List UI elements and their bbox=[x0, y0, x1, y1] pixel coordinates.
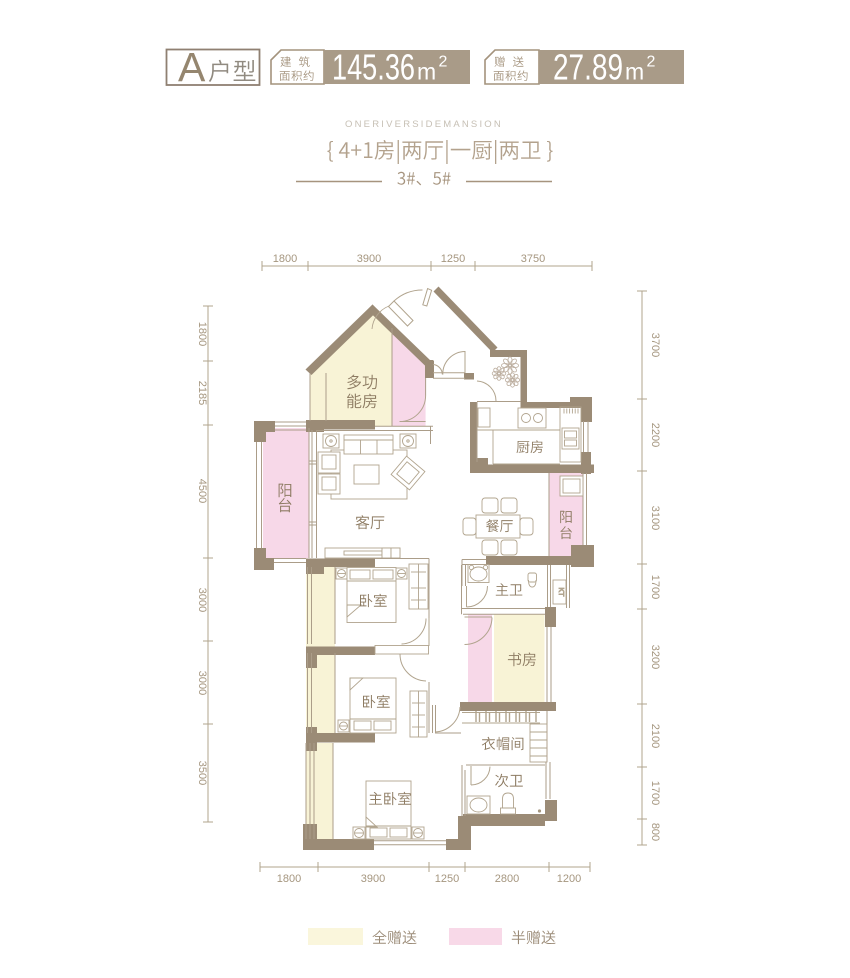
svg-text:2100: 2100 bbox=[649, 724, 661, 748]
svg-text:3100: 3100 bbox=[649, 506, 661, 530]
svg-text:KT: KT bbox=[557, 588, 564, 598]
svg-text:2: 2 bbox=[647, 54, 656, 71]
svg-text:1700: 1700 bbox=[649, 781, 661, 805]
svg-text:27.89: 27.89 bbox=[553, 47, 623, 88]
svg-text:1700: 1700 bbox=[649, 575, 661, 599]
svg-text:3200: 3200 bbox=[649, 645, 661, 669]
svg-text:2200: 2200 bbox=[649, 423, 661, 447]
svg-text:m: m bbox=[625, 59, 644, 85]
svg-text:3900: 3900 bbox=[361, 873, 385, 885]
svg-text:1200: 1200 bbox=[557, 873, 581, 885]
svg-text:3000: 3000 bbox=[196, 671, 208, 695]
svg-text:2185: 2185 bbox=[196, 381, 208, 405]
svg-text:4500: 4500 bbox=[196, 479, 208, 503]
svg-text:3000: 3000 bbox=[196, 588, 208, 612]
svg-text:1250: 1250 bbox=[435, 873, 459, 885]
svg-text:A: A bbox=[178, 44, 206, 90]
svg-text:ONERIVERSIDEMANSION: ONERIVERSIDEMANSION bbox=[345, 119, 503, 130]
svg-text:3900: 3900 bbox=[357, 253, 381, 265]
svg-text:1250: 1250 bbox=[441, 253, 465, 265]
svg-text:2800: 2800 bbox=[495, 873, 519, 885]
svg-text:800: 800 bbox=[649, 823, 661, 841]
svg-text:3750: 3750 bbox=[521, 253, 545, 265]
svg-text:1800: 1800 bbox=[277, 873, 301, 885]
svg-text:m: m bbox=[417, 59, 436, 85]
svg-text:3500: 3500 bbox=[196, 761, 208, 785]
svg-text:1800: 1800 bbox=[273, 253, 297, 265]
svg-text:3700: 3700 bbox=[649, 333, 661, 357]
svg-text:2: 2 bbox=[439, 54, 448, 71]
svg-text:1800: 1800 bbox=[196, 322, 208, 346]
svg-text:145.36: 145.36 bbox=[332, 47, 415, 88]
